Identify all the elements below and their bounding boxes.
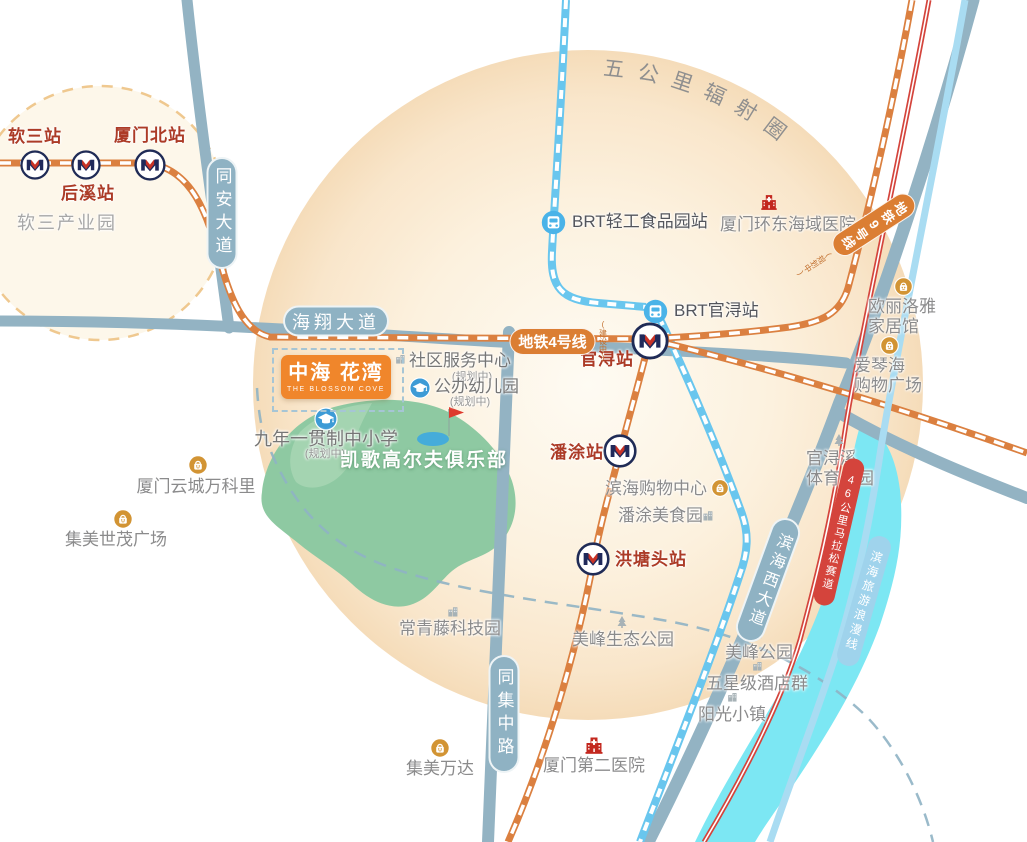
poi-public-kindergarten-planned-note: (规划中) [450, 396, 490, 409]
line-metro-4-label: 地铁4号线 [518, 331, 586, 352]
brt-station-guanxun-label: BRT官浔站 [674, 301, 759, 321]
shopping-bag-icon [880, 336, 899, 355]
shopping-bag-icon [188, 455, 208, 475]
location-map: 五公里辐射圈 中海 花湾 THE BLOSSOM COVE 软三站后溪站厦门北站… [0, 0, 1027, 842]
shopping-bag-icon [711, 479, 729, 497]
poi-yuncheng-vankeli-label: 厦门云城万科里 [137, 477, 256, 497]
poi-sunshine-town-label: 阳光小镇 [698, 705, 766, 725]
poi-changqingteng-tech-park-label: 常青藤科技园 [399, 619, 501, 639]
station-hongtangtou-label: 洪塘头站 [615, 550, 687, 570]
metro-logo-icon [603, 434, 637, 468]
hospital-icon [759, 191, 779, 211]
station-pantu-label: 潘涂站 [550, 443, 604, 463]
poi-huandong-hospital-label: 厦门环东海域医院 [720, 215, 856, 235]
poi-xiamen-second-hospital-label: 厦门第二医院 [543, 756, 645, 776]
line-metro-4-status-note: (建设中) [599, 320, 607, 362]
poi-community-service-center-label: 社区服务中心 [409, 351, 511, 371]
road-tongan-avenue-label: 同安大道 [210, 167, 235, 259]
line-metro-4-badge: 地铁4号线(建设中) [510, 320, 607, 362]
poi-nine-year-school-label: 九年一贯制中小学 [254, 429, 398, 450]
metro-logo-icon [631, 322, 669, 360]
hospital-icon [583, 733, 605, 755]
poi-aiqinhai-shopping-plaza-label: 爱琴海 购物广场 [854, 356, 922, 395]
station-xiamen-north-label: 厦门北站 [114, 126, 186, 146]
poi-kaige-golf-club-label: 凯歌高尔夫俱乐部 [340, 450, 508, 472]
brt-station-qinggong-food-park-label: BRT轻工食品园站 [572, 212, 708, 232]
poi-oulilouya-home-mall-label: 欧丽洛雅 家居馆 [868, 297, 936, 336]
shopping-bag-icon [113, 509, 133, 529]
graduation-cap-icon [409, 377, 431, 399]
poi-jimei-wanda-label: 集美万达 [406, 759, 474, 779]
shopping-bag-icon [894, 277, 913, 296]
project-name-en: THE BLOSSOM COVE [287, 386, 385, 393]
project-name: 中海 花湾 [288, 362, 384, 384]
building-icon [446, 604, 459, 617]
metro-logo-icon [576, 542, 610, 576]
tree-icon [832, 432, 846, 446]
project-label: 中海 花湾 THE BLOSSOM COVE [281, 355, 391, 399]
golf-pond [417, 432, 449, 446]
road-tongji-middle-label: 同集中路 [492, 668, 517, 760]
poi-jimei-shimao-plaza-label: 集美世茂广场 [65, 530, 167, 550]
poi-ruansan-industrial-park-label: 软三产业园 [17, 213, 117, 234]
road-haixiang-avenue-label: 海翔大道 [292, 308, 380, 334]
brt-bus-icon [642, 298, 669, 325]
poi-public-kindergarten-label: 公办幼儿园 [434, 377, 519, 397]
station-houxi-label: 后溪站 [61, 184, 115, 204]
road-tongji-middle-badge: 同集中路 [489, 655, 520, 773]
metro-logo-icon [134, 149, 166, 181]
road-haixiang-avenue-badge: 海翔大道 [283, 306, 389, 337]
station-ruansan-label: 软三站 [8, 127, 62, 147]
poi-meifeng-eco-park-label: 美峰生态公园 [572, 630, 674, 650]
brt-bus-icon [540, 209, 567, 236]
metro-logo-icon [20, 150, 50, 180]
shopping-bag-icon [430, 738, 450, 758]
poi-five-star-hotels-label: 五星级酒店群 [706, 674, 808, 694]
road-tongan-avenue-badge: 同安大道 [207, 157, 238, 269]
metro-logo-icon [71, 150, 101, 180]
tree-icon [615, 614, 629, 628]
poi-binhai-shopping-center-label: 滨海购物中心 [605, 479, 707, 499]
poi-pantu-food-park-label: 潘涂美食园 [618, 506, 703, 526]
